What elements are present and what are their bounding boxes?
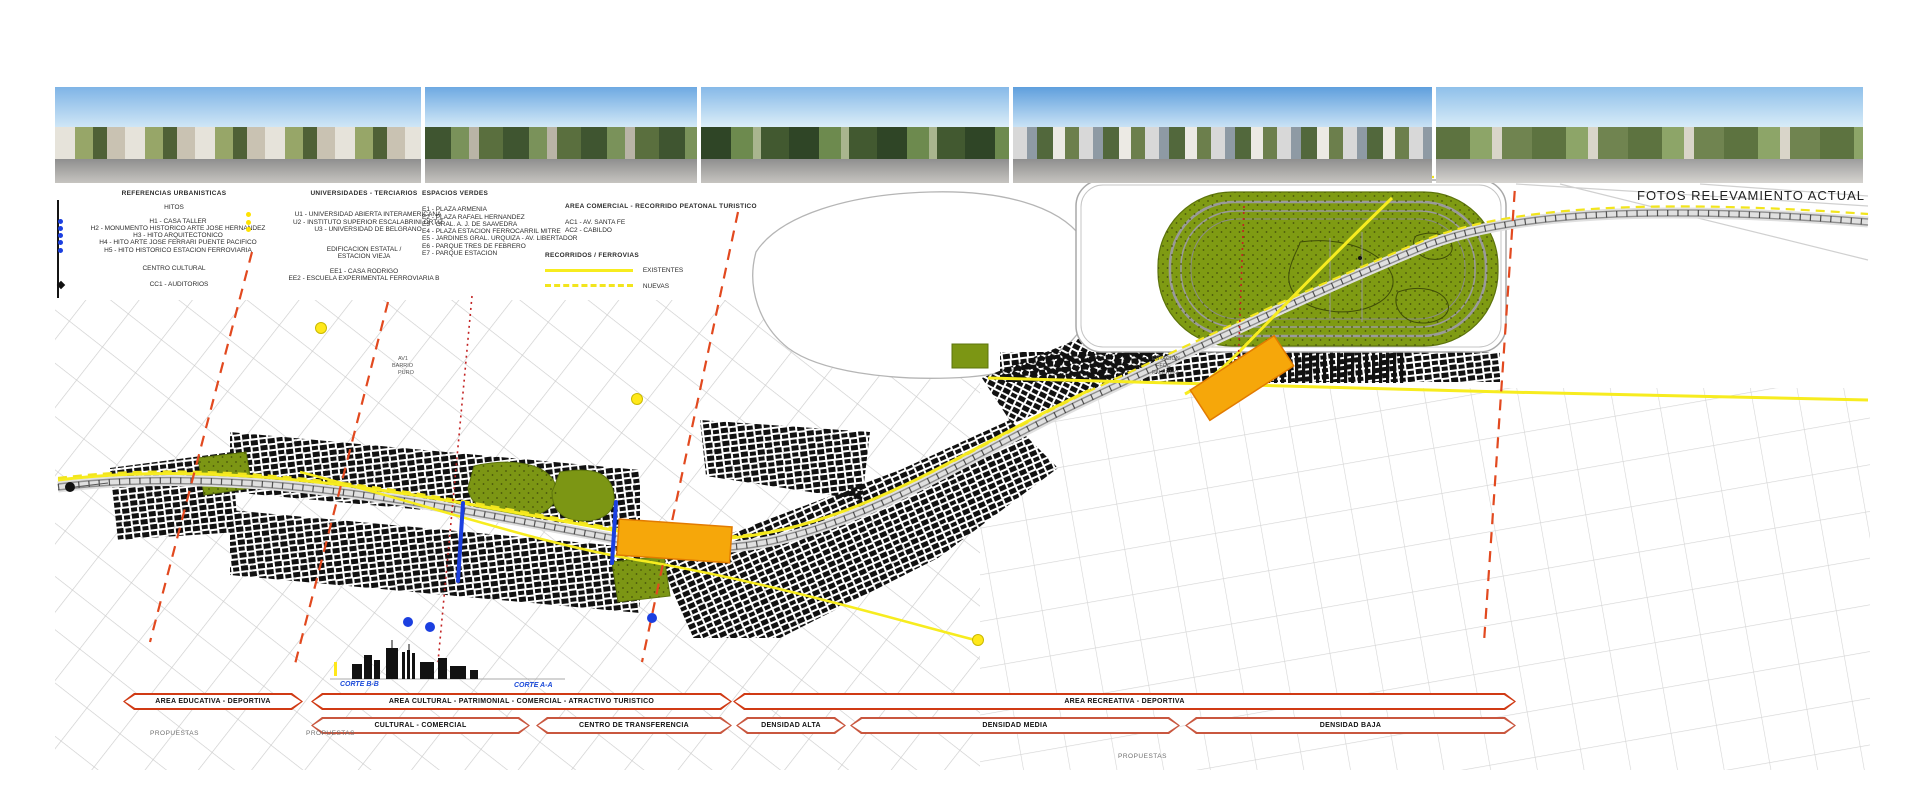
zone-banner-densidad-media: DENSIDAD MEDIA xyxy=(850,717,1180,734)
photo-sky xyxy=(701,87,1009,127)
proposals-label: PROPUESTAS xyxy=(1118,753,1167,760)
legend-item: E5 - JARDINES GRAL. URQUIZA - AV. LIBERT… xyxy=(422,235,642,242)
legend-routes: RECORRIDOS / FERROVIAS EXISTENTES NUEVAS xyxy=(545,252,745,290)
photo-panorama-3 xyxy=(701,87,1009,183)
banner-label: AREA EDUCATIVA - DEPORTIVA xyxy=(123,693,303,710)
station-label-line3: PALERMO xyxy=(1152,370,1179,376)
banner-label: AREA CULTURAL - PATRIMONIAL - COMERCIAL … xyxy=(311,693,732,710)
zone-banner-densidad-alta: DENSIDAD ALTA xyxy=(736,717,846,734)
photo-road xyxy=(425,159,697,183)
blue-dot-icon xyxy=(58,248,63,253)
legend-item: EE2 - ESCUELA EXPERIMENTAL FERROVIARIA B xyxy=(246,275,482,282)
photo-sky xyxy=(425,87,697,127)
photo-street xyxy=(1436,127,1863,159)
cut-label-b: CORTE B-B xyxy=(340,681,379,688)
photo-panorama-4 xyxy=(1013,87,1432,183)
new-route-line-icon xyxy=(545,284,633,287)
photo-road xyxy=(701,159,1009,183)
photo-sky xyxy=(1436,87,1863,127)
blue-dot-icon xyxy=(58,233,63,238)
legend-item: EE1 - CASA RODRIGO xyxy=(246,268,482,275)
photo-street xyxy=(425,127,697,159)
blue-dot-icon xyxy=(58,219,63,224)
photo-strip-caption: FOTOS RELEVAMIENTO ACTUAL xyxy=(1350,188,1865,203)
legend-item: EXISTENTES xyxy=(643,267,683,274)
yellow-dot-icon xyxy=(246,212,251,217)
legend-title: RECORRIDOS / FERROVIAS xyxy=(545,252,745,259)
legend-column-area-comercial: AREA COMERCIAL - RECORRIDO PEATONAL TURI… xyxy=(565,203,825,234)
station-label-line2: FFCC xyxy=(1156,363,1171,369)
proposals-label: PROPUESTAS xyxy=(306,730,355,737)
photo-sky xyxy=(55,87,421,127)
racetrack-park xyxy=(1076,180,1506,352)
blue-dot-icon xyxy=(58,226,63,231)
proposals-label: PROPUESTAS xyxy=(150,730,199,737)
existing-route-line-icon xyxy=(545,269,633,272)
photo-road xyxy=(1013,159,1432,183)
legend-item: E6 - PARQUE TRES DE FEBRERO xyxy=(422,243,642,250)
legend-item: NUEVAS xyxy=(643,283,669,290)
photo-street xyxy=(701,127,1009,159)
legend-title: AREA COMERCIAL - RECORRIDO PEATONAL TURI… xyxy=(565,203,825,210)
zone-banner-cultural: AREA CULTURAL - PATRIMONIAL - COMERCIAL … xyxy=(311,693,732,710)
area-label-line3: PURO xyxy=(398,370,415,376)
photo-road xyxy=(55,159,421,183)
yellow-dot-icon xyxy=(246,227,251,232)
blue-dot-icon xyxy=(58,240,63,245)
yellow-dot-icon xyxy=(246,220,251,225)
zone-banner-centro-transferencia: CENTRO DE TRANSFERENCIA xyxy=(536,717,732,734)
photo-street xyxy=(55,127,421,159)
legend-item: AC1 - AV. SANTA FE xyxy=(565,219,825,226)
legend-item: CC1 - AUDITORIOS xyxy=(68,281,290,288)
banner-label: CENTRO DE TRANSFERENCIA xyxy=(536,717,732,734)
banner-label: DENSIDAD ALTA xyxy=(736,717,846,734)
banner-label: DENSIDAD BAJA xyxy=(1185,717,1516,734)
area-label-line1: AV1 xyxy=(398,356,408,362)
station-label-line1: ESTACION xyxy=(1152,356,1180,362)
photo-panorama-5 xyxy=(1436,87,1863,183)
area-label-line2: BARRIO xyxy=(392,363,414,369)
photo-panorama-2 xyxy=(425,87,697,183)
photo-panorama-1 xyxy=(55,87,421,183)
zone-banner-recreativa: AREA RECREATIVA - DEPORTIVA xyxy=(733,693,1516,710)
photo-street xyxy=(1013,127,1432,159)
black-diamond-icon xyxy=(57,281,65,289)
photo-road xyxy=(1436,159,1863,183)
photo-sky xyxy=(1013,87,1432,127)
legend-title: ESPACIOS VERDES xyxy=(422,190,642,197)
zone-banner-educativa: AREA EDUCATIVA - DEPORTIVA xyxy=(123,693,303,710)
zone-banner-densidad-baja: DENSIDAD BAJA xyxy=(1185,717,1516,734)
banner-label: DENSIDAD MEDIA xyxy=(850,717,1180,734)
banner-label: AREA RECREATIVA - DEPORTIVA xyxy=(733,693,1516,710)
cut-label-a: CORTE A-A xyxy=(514,682,553,689)
urban-plan-sheet: ESTACION FFCC PALERMO AV1 BARRIO PURO xyxy=(0,0,1920,796)
legend-item: AC2 - CABILDO xyxy=(565,227,825,234)
